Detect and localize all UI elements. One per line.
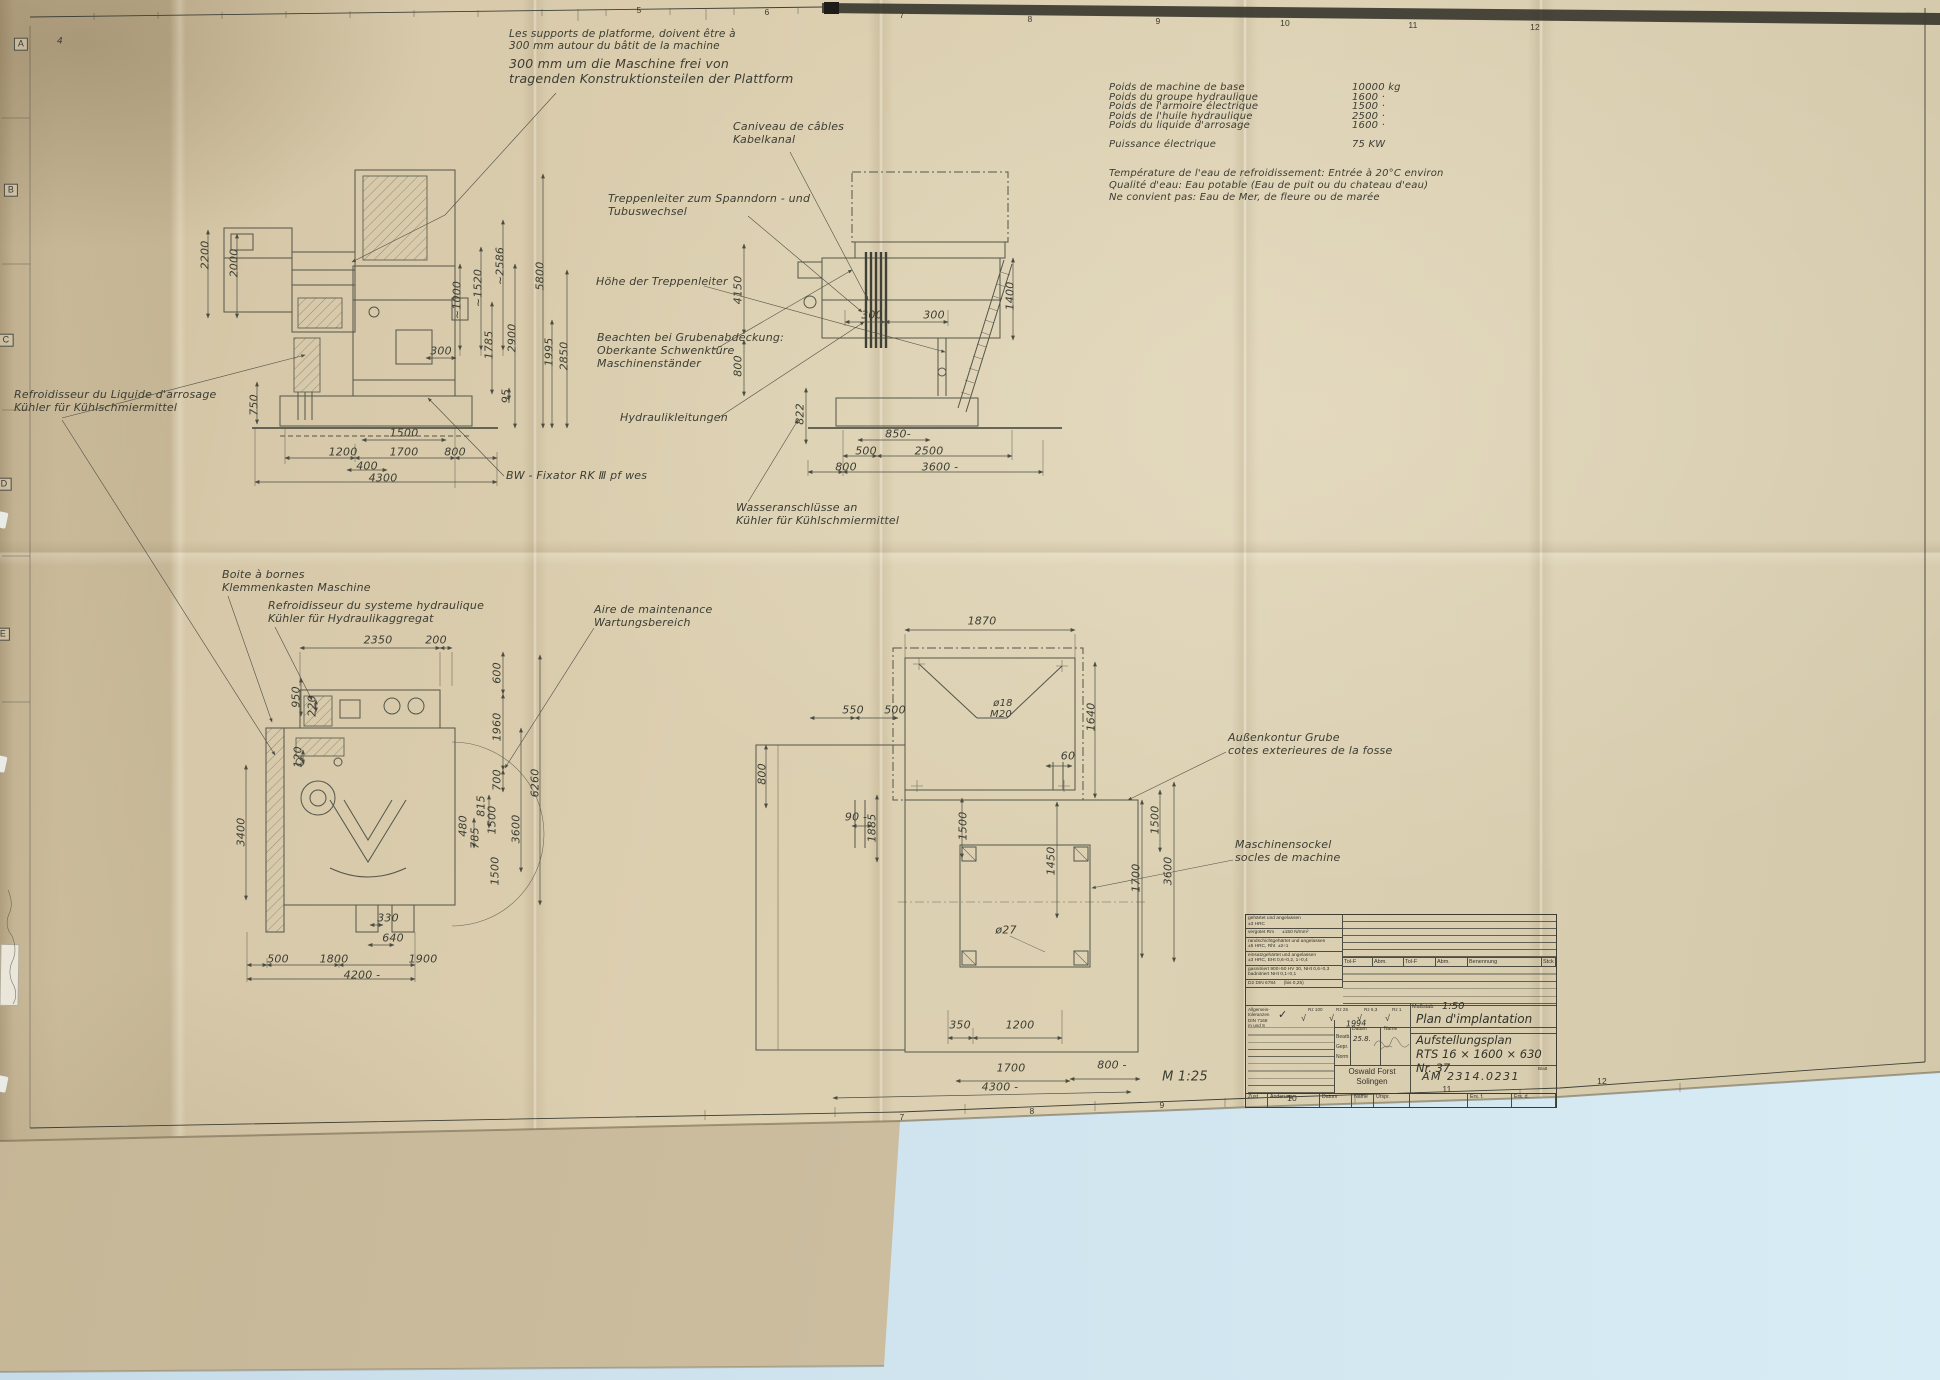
dim-plan-view: 220 bbox=[307, 695, 320, 717]
parts-column-header: Benennung bbox=[1468, 957, 1542, 967]
dim-pit-plan: 60 bbox=[1061, 751, 1075, 764]
dim-front-elevation: 95 bbox=[501, 389, 514, 403]
dim-front-elevation: ~2586 bbox=[495, 247, 508, 285]
revision-cell: Änderung bbox=[1268, 1094, 1320, 1107]
scale-value: 1:50 bbox=[1442, 1001, 1464, 1013]
dim-plan-view: 2350 bbox=[364, 635, 393, 648]
mini-row-label: Gepr. bbox=[1336, 1045, 1348, 1051]
callout-label: Außenkontur Grube cotes exterieures de l… bbox=[1228, 732, 1392, 758]
zone-number: 10 bbox=[1280, 18, 1290, 28]
zone-number: 5 bbox=[637, 5, 642, 15]
handwritten-year: 1994 bbox=[1346, 1018, 1367, 1028]
dim-front-elevation: 1995 bbox=[544, 338, 557, 367]
spec-label: Puissance électrique bbox=[1109, 139, 1216, 151]
dim-front-elevation: 2850 bbox=[559, 342, 572, 371]
revision-cell: Zust bbox=[1246, 1094, 1268, 1107]
mini-row-label: Bearb. bbox=[1336, 1035, 1351, 1041]
zone-letter: B bbox=[4, 184, 18, 197]
ers-f-cell: Ers. f. bbox=[1468, 1094, 1512, 1107]
heat-treatment-row: D2 DIN 6784 (bis 0,25) bbox=[1246, 980, 1342, 989]
zone-letter: C bbox=[0, 334, 13, 347]
grid-rows bbox=[1343, 967, 1556, 1005]
handwriting-scribbles bbox=[7, 890, 1409, 1050]
dim-side-elevation: 822 bbox=[795, 403, 808, 425]
dim-pit-plan: 3600 bbox=[1163, 857, 1176, 886]
revision-cell: Datum bbox=[1320, 1094, 1352, 1107]
dim-side-elevation: 4150 bbox=[733, 276, 746, 305]
dim-pit-plan: M20 bbox=[990, 709, 1012, 721]
dim-plan-view: 1900 bbox=[409, 954, 438, 967]
heat-treatment-row: gehärtet und angelassen ±3 HRC bbox=[1246, 915, 1342, 929]
roughness-value: Rz 25 bbox=[1336, 1007, 1348, 1012]
dim-pit-plan: 90 - bbox=[845, 812, 867, 825]
dim-plan-view: 950 bbox=[291, 686, 304, 708]
dim-side-elevation: 850- bbox=[885, 429, 911, 442]
dim-pit-plan: 800 bbox=[757, 763, 770, 785]
heat-treatment-row: gasnitriert 900÷50 HV 30, NHt 0,6÷0,3 ba… bbox=[1246, 966, 1342, 980]
dim-side-elevation: 300 bbox=[923, 310, 945, 323]
zone-number: 7 bbox=[900, 10, 905, 20]
grid-rows bbox=[1343, 915, 1556, 957]
dim-plan-view: 200 bbox=[425, 635, 447, 648]
parts-list-header: Tol-FAbm.Tol-FAbm.BenennungStck bbox=[1343, 957, 1556, 967]
dim-side-elevation: 2500 bbox=[915, 446, 944, 459]
dim-plan-view: 700 bbox=[492, 769, 505, 791]
dim-plan-view: 785 bbox=[470, 827, 483, 849]
dim-front-elevation: 1200 bbox=[329, 447, 358, 460]
dim-plan-view: 1800 bbox=[320, 954, 349, 967]
dim-front-elevation: 4300 bbox=[369, 473, 398, 486]
parts-column-header: Abm. bbox=[1373, 957, 1404, 967]
zone-number: 12 bbox=[1597, 1076, 1607, 1086]
dim-plan-view: 6260 bbox=[530, 769, 543, 798]
callout-label: Höhe der Treppenleiter bbox=[596, 276, 728, 289]
general-tolerances-note: Allgemein- toleranzen DIN 7168 m und S bbox=[1248, 1007, 1276, 1028]
spec-value: 1600 · bbox=[1352, 120, 1385, 132]
parts-column-header: Tol-F bbox=[1343, 957, 1373, 967]
title-french: Plan d'implantation bbox=[1416, 1013, 1532, 1027]
parts-column-header: Stck bbox=[1542, 957, 1556, 967]
dim-front-elevation: 750 bbox=[249, 394, 262, 416]
callout-label: Refroidisseur du systeme hydraulique Küh… bbox=[268, 600, 484, 626]
dim-plan-view: 1960 bbox=[492, 713, 505, 742]
dim-front-elevation: 300 bbox=[430, 346, 452, 359]
dim-front-elevation: 2000 bbox=[229, 249, 242, 278]
dim-pit-plan: 800 - bbox=[1097, 1060, 1126, 1073]
dim-pit-plan: 1700 bbox=[1131, 864, 1144, 893]
mini-header-name: Name bbox=[1384, 1027, 1397, 1033]
heat-treatment-row: vergütet Rm ±150 N/mm² bbox=[1246, 929, 1342, 938]
callout-label: Refroidisseur du Liquide d'arrosage Kühl… bbox=[14, 389, 217, 415]
company: Oswald Forst Solingen bbox=[1334, 1067, 1410, 1087]
callout-label: Caniveau de câbles Kabelkanal bbox=[733, 121, 844, 147]
zone-number: 8 bbox=[1030, 1106, 1035, 1116]
revision-cell: Urspr. bbox=[1374, 1094, 1410, 1107]
dim-side-elevation: 800 bbox=[733, 355, 746, 377]
dim-pit-plan: 350 bbox=[949, 1020, 971, 1033]
revision-cell-empty bbox=[1410, 1094, 1468, 1107]
dim-plan-view: 4200 - bbox=[344, 970, 381, 983]
dim-plan-view: 600 bbox=[492, 662, 505, 684]
dim-pit-plan: 1500 bbox=[958, 812, 971, 841]
heat-treatment-row: einsatzgehärtet und angelassen ±3 HRC, E… bbox=[1246, 952, 1342, 966]
title-block: gehärtet und angelassen ±3 HRCvergütet R… bbox=[1245, 914, 1557, 1108]
callout-label: Wasseranschlüsse an Kühler für Kühlschmi… bbox=[736, 502, 899, 528]
dim-front-elevation: 5800 bbox=[535, 262, 548, 291]
dim-front-elevation: ~1000 bbox=[452, 281, 465, 319]
revision-row: ZustÄnderungDatumNameUrspr.Ers. f.Ers. d… bbox=[1246, 1093, 1556, 1107]
spec-label: Poids du liquide d'arrosage bbox=[1109, 120, 1250, 132]
callout-label: Boite à bornes Klemmenkasten Maschine bbox=[222, 569, 371, 595]
roughness-value: Rz 1 bbox=[1392, 1007, 1401, 1012]
callout-label: Treppenleiter zum Spanndorn - und Tubusw… bbox=[608, 193, 810, 219]
note-platform-fr: Les supports de platforme, doivent être … bbox=[509, 28, 736, 53]
dim-side-elevation: 1400 bbox=[1005, 282, 1018, 311]
dim-plan-view: 1500 bbox=[487, 806, 500, 835]
parts-column-header: Abm. bbox=[1436, 957, 1468, 967]
dim-side-elevation: 500 bbox=[855, 446, 877, 459]
dim-pit-plan: 1200 bbox=[1006, 1020, 1035, 1033]
drawing-number: AM 2314.0231 bbox=[1422, 1071, 1520, 1084]
dim-pit-plan: ø27 bbox=[995, 925, 1016, 938]
dim-plan-view: 330 bbox=[377, 913, 399, 926]
roughness-value: Rz 6,3 bbox=[1364, 1007, 1377, 1012]
dim-plan-view: 640 bbox=[382, 933, 404, 946]
zone-number: 8 bbox=[1028, 14, 1033, 24]
dim-plan-view: 500 bbox=[267, 954, 289, 967]
dim-pit-plan: 1885 bbox=[867, 814, 880, 843]
dim-front-elevation: 1500 bbox=[390, 428, 419, 441]
zone-number: 9 bbox=[1156, 16, 1161, 26]
dim-front-elevation: 800 bbox=[444, 447, 466, 460]
spec-value: 75 KW bbox=[1352, 139, 1385, 151]
dim-plan-view: 1500 bbox=[490, 857, 503, 886]
mini-row-label: Norm bbox=[1336, 1055, 1348, 1061]
dim-side-elevation: 800 bbox=[835, 462, 857, 475]
callout-label: Beachten bei Grubenabdeckung: Oberkante … bbox=[597, 332, 784, 371]
callout-label: Hydraulikleitungen bbox=[620, 412, 728, 425]
photo-of-drawing: Caniveau de câbles KabelkanalTreppenleit… bbox=[0, 0, 1940, 1380]
dim-front-elevation: 2900 bbox=[507, 324, 520, 353]
dim-pit-plan: 1870 bbox=[968, 616, 997, 629]
scale-note: M 1:25 bbox=[1162, 1069, 1208, 1084]
dim-plan-view: 3600 bbox=[511, 815, 524, 844]
roughness-value: Rz 100 bbox=[1308, 1007, 1323, 1012]
note-platform-de: 300 mm um die Maschine frei von tragende… bbox=[509, 57, 794, 87]
check-mark-icon: ✓ bbox=[1278, 1009, 1287, 1022]
pencil-mark: 4 bbox=[57, 37, 63, 48]
dim-side-elevation: 3600 - bbox=[922, 462, 959, 475]
dim-front-elevation: 1785 bbox=[484, 331, 497, 360]
callout-label: Maschinensockel socles de machine bbox=[1235, 839, 1340, 865]
callout-label: Aire de maintenance Wartungsbereich bbox=[594, 604, 712, 630]
zone-number: 7 bbox=[900, 1112, 905, 1122]
dim-pit-plan: 500 bbox=[884, 705, 906, 718]
note-cooling-water: Température de l'eau de refroidissement:… bbox=[1109, 168, 1444, 203]
callout-label: BW - Fixator RK Ⅲ pf wes bbox=[506, 470, 647, 483]
zone-letter: D bbox=[0, 478, 11, 491]
zone-number: 6 bbox=[765, 7, 770, 17]
dim-front-elevation: 2200 bbox=[200, 241, 213, 270]
dim-pit-plan: 1700 bbox=[997, 1063, 1026, 1076]
dim-plan-view: 120 bbox=[293, 746, 306, 768]
dim-pit-plan: 1450 bbox=[1046, 847, 1059, 876]
zone-letter: A bbox=[14, 38, 28, 51]
blatt-label: Blatt bbox=[1538, 1066, 1547, 1071]
roughness-symbol: √Rz 100 bbox=[1301, 1007, 1325, 1029]
zone-number: 9 bbox=[1160, 1100, 1165, 1110]
dim-side-elevation: 300 bbox=[861, 310, 883, 323]
heat-treatment-row: randschichtgehärtet und angelassen ±5 HR… bbox=[1246, 938, 1342, 952]
dim-pit-plan: 1500 bbox=[1150, 806, 1163, 835]
dim-front-elevation: 1700 bbox=[390, 447, 419, 460]
dim-pit-plan: 4300 - bbox=[982, 1082, 1019, 1095]
dim-plan-view: 3400 bbox=[236, 818, 249, 847]
zone-number: 11 bbox=[1408, 20, 1417, 30]
dim-front-elevation: ~1520 bbox=[473, 269, 486, 307]
ers-d-cell: Ers. d. bbox=[1512, 1094, 1556, 1107]
dim-pit-plan: 550 bbox=[842, 705, 864, 718]
dim-pit-plan: 1640 bbox=[1086, 703, 1099, 732]
zone-number: 12 bbox=[1530, 22, 1540, 32]
parts-column-header: Tol-F bbox=[1404, 957, 1436, 967]
revision-cell: Name bbox=[1352, 1094, 1374, 1107]
heat-treatment-notes: gehärtet und angelassen ±3 HRCvergütet R… bbox=[1246, 915, 1343, 988]
zone-letter: E bbox=[0, 628, 10, 641]
scale-label: Maßstab bbox=[1412, 1004, 1433, 1010]
bearb-date: 25.8. bbox=[1353, 1035, 1371, 1043]
